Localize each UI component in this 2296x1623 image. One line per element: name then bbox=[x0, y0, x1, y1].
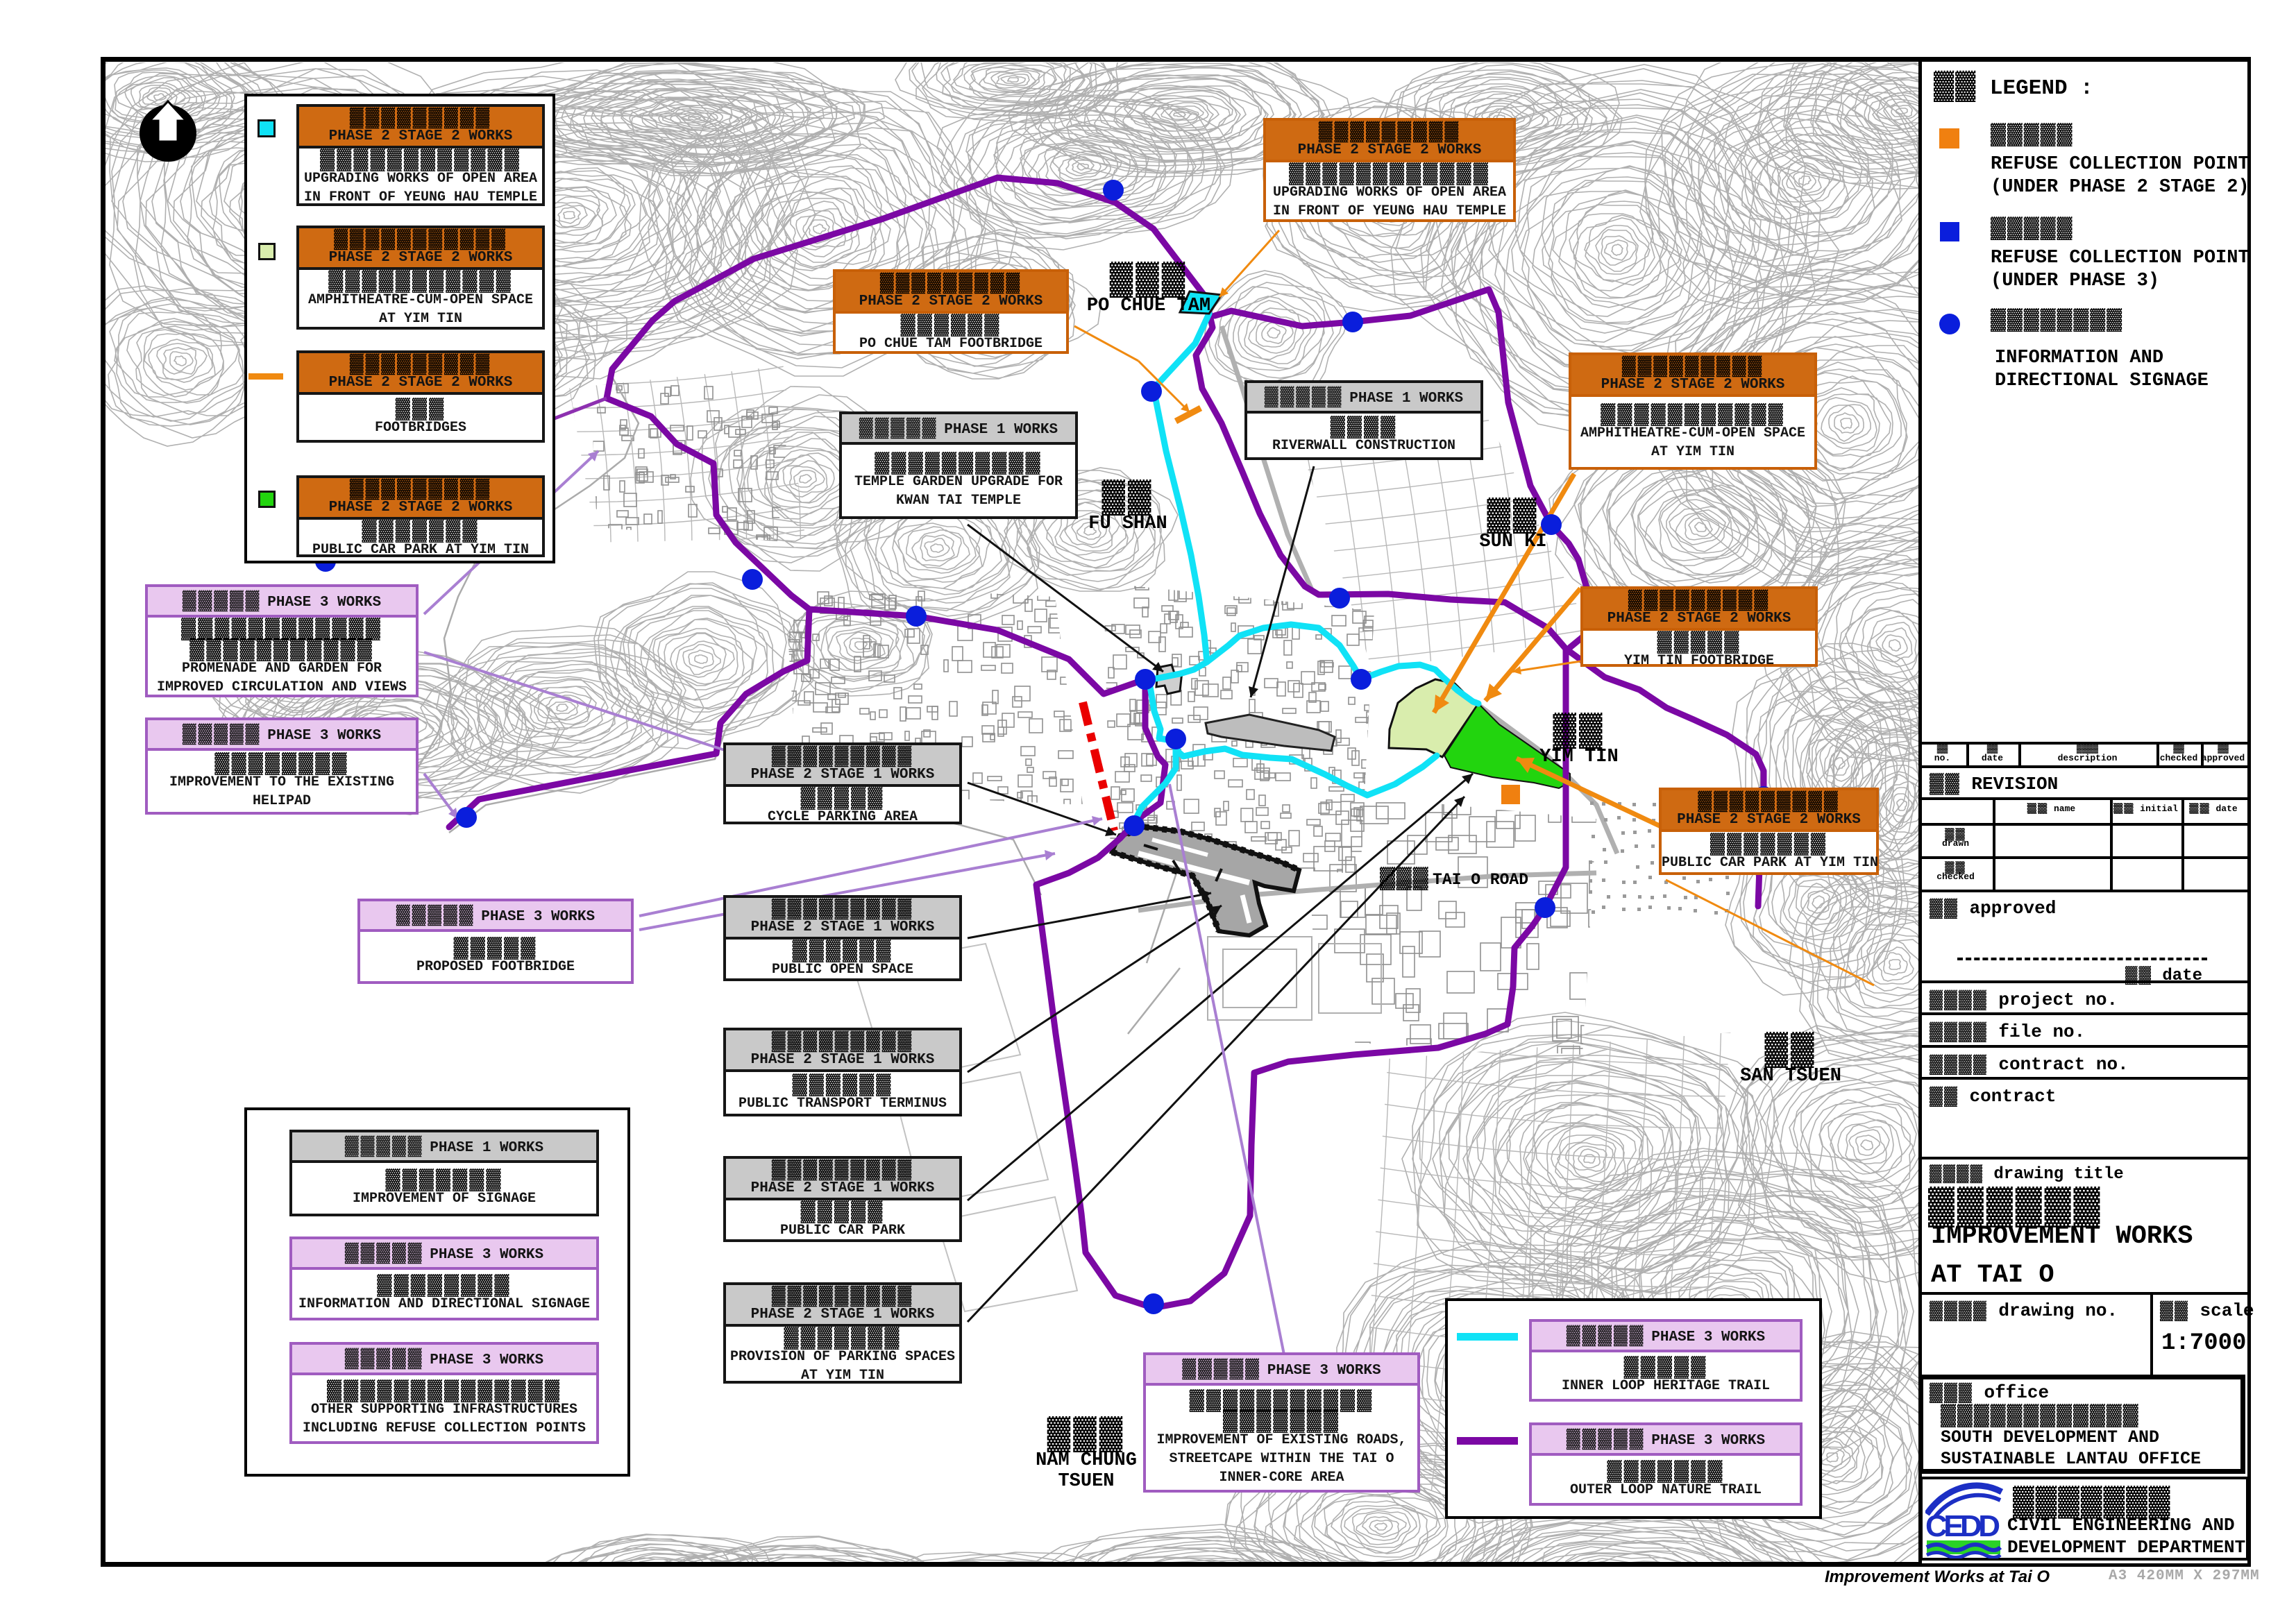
svg-text:CEDD: CEDD bbox=[1925, 1509, 2000, 1543]
